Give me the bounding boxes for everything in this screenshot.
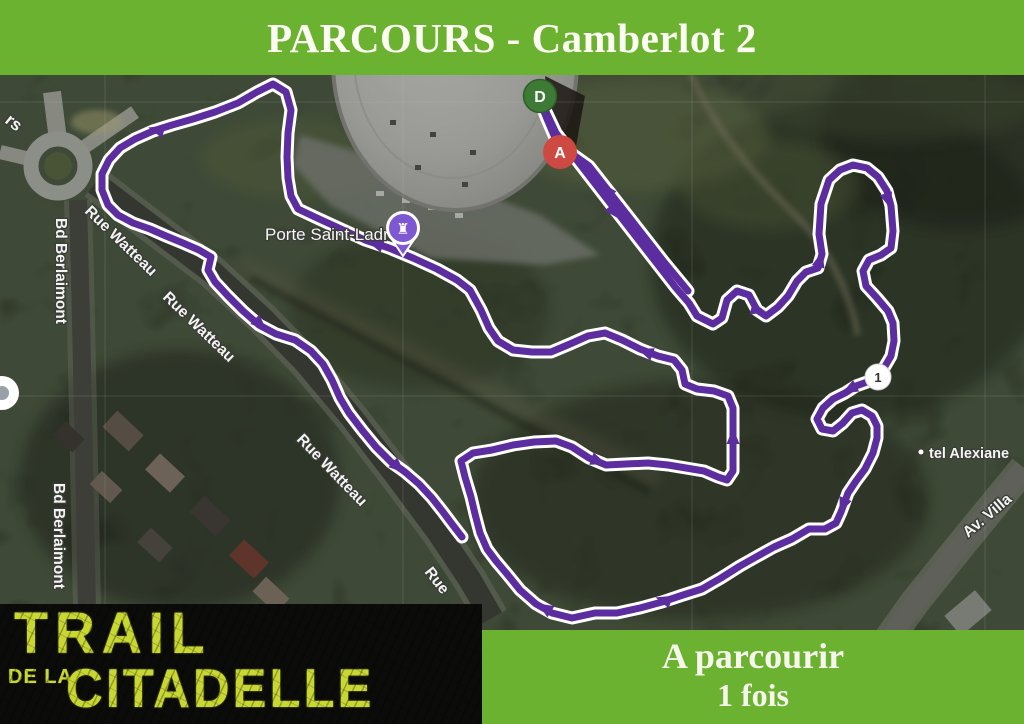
marker-start-D[interactable]: D bbox=[524, 80, 557, 113]
laps-info-panel: A parcourir 1 fois bbox=[482, 630, 1024, 724]
page-title: PARCOURS - Camberlot 2 bbox=[267, 14, 757, 62]
marker-finish-label: A bbox=[554, 145, 566, 162]
title-banner: PARCOURS - Camberlot 2 bbox=[0, 0, 1024, 75]
poi-label-hotel-alexiane: tel Alexiane bbox=[929, 446, 1009, 462]
laps-info-line1: A parcourir bbox=[482, 636, 1024, 676]
marker-km-1[interactable]: 1 bbox=[865, 364, 891, 390]
rook-icon: ♜ bbox=[396, 221, 409, 238]
porte-saint-ladre-label: Porte Saint-Ladre bbox=[265, 225, 398, 244]
marker-start-label: D bbox=[534, 89, 546, 106]
hotel-poi-dot bbox=[918, 449, 924, 455]
street-label-berlaimont-1: Bd Berlaimont bbox=[52, 218, 69, 324]
marker-finish-A[interactable]: A bbox=[543, 135, 577, 169]
event-logo: TRAIL DE LA CITADELLE bbox=[0, 604, 482, 724]
logo-line-dela: DE LA bbox=[8, 666, 73, 689]
street-label-berlaimont-2: Bd Berlaimont bbox=[50, 483, 67, 589]
marker-km-label: 1 bbox=[874, 370, 881, 385]
laps-info-line2: 1 fois bbox=[482, 676, 1024, 714]
course-map-page: rs Rue Watteau Rue Watteau Rue Watteau R… bbox=[0, 0, 1024, 724]
logo-line-citadelle: CITADELLE bbox=[66, 656, 374, 720]
